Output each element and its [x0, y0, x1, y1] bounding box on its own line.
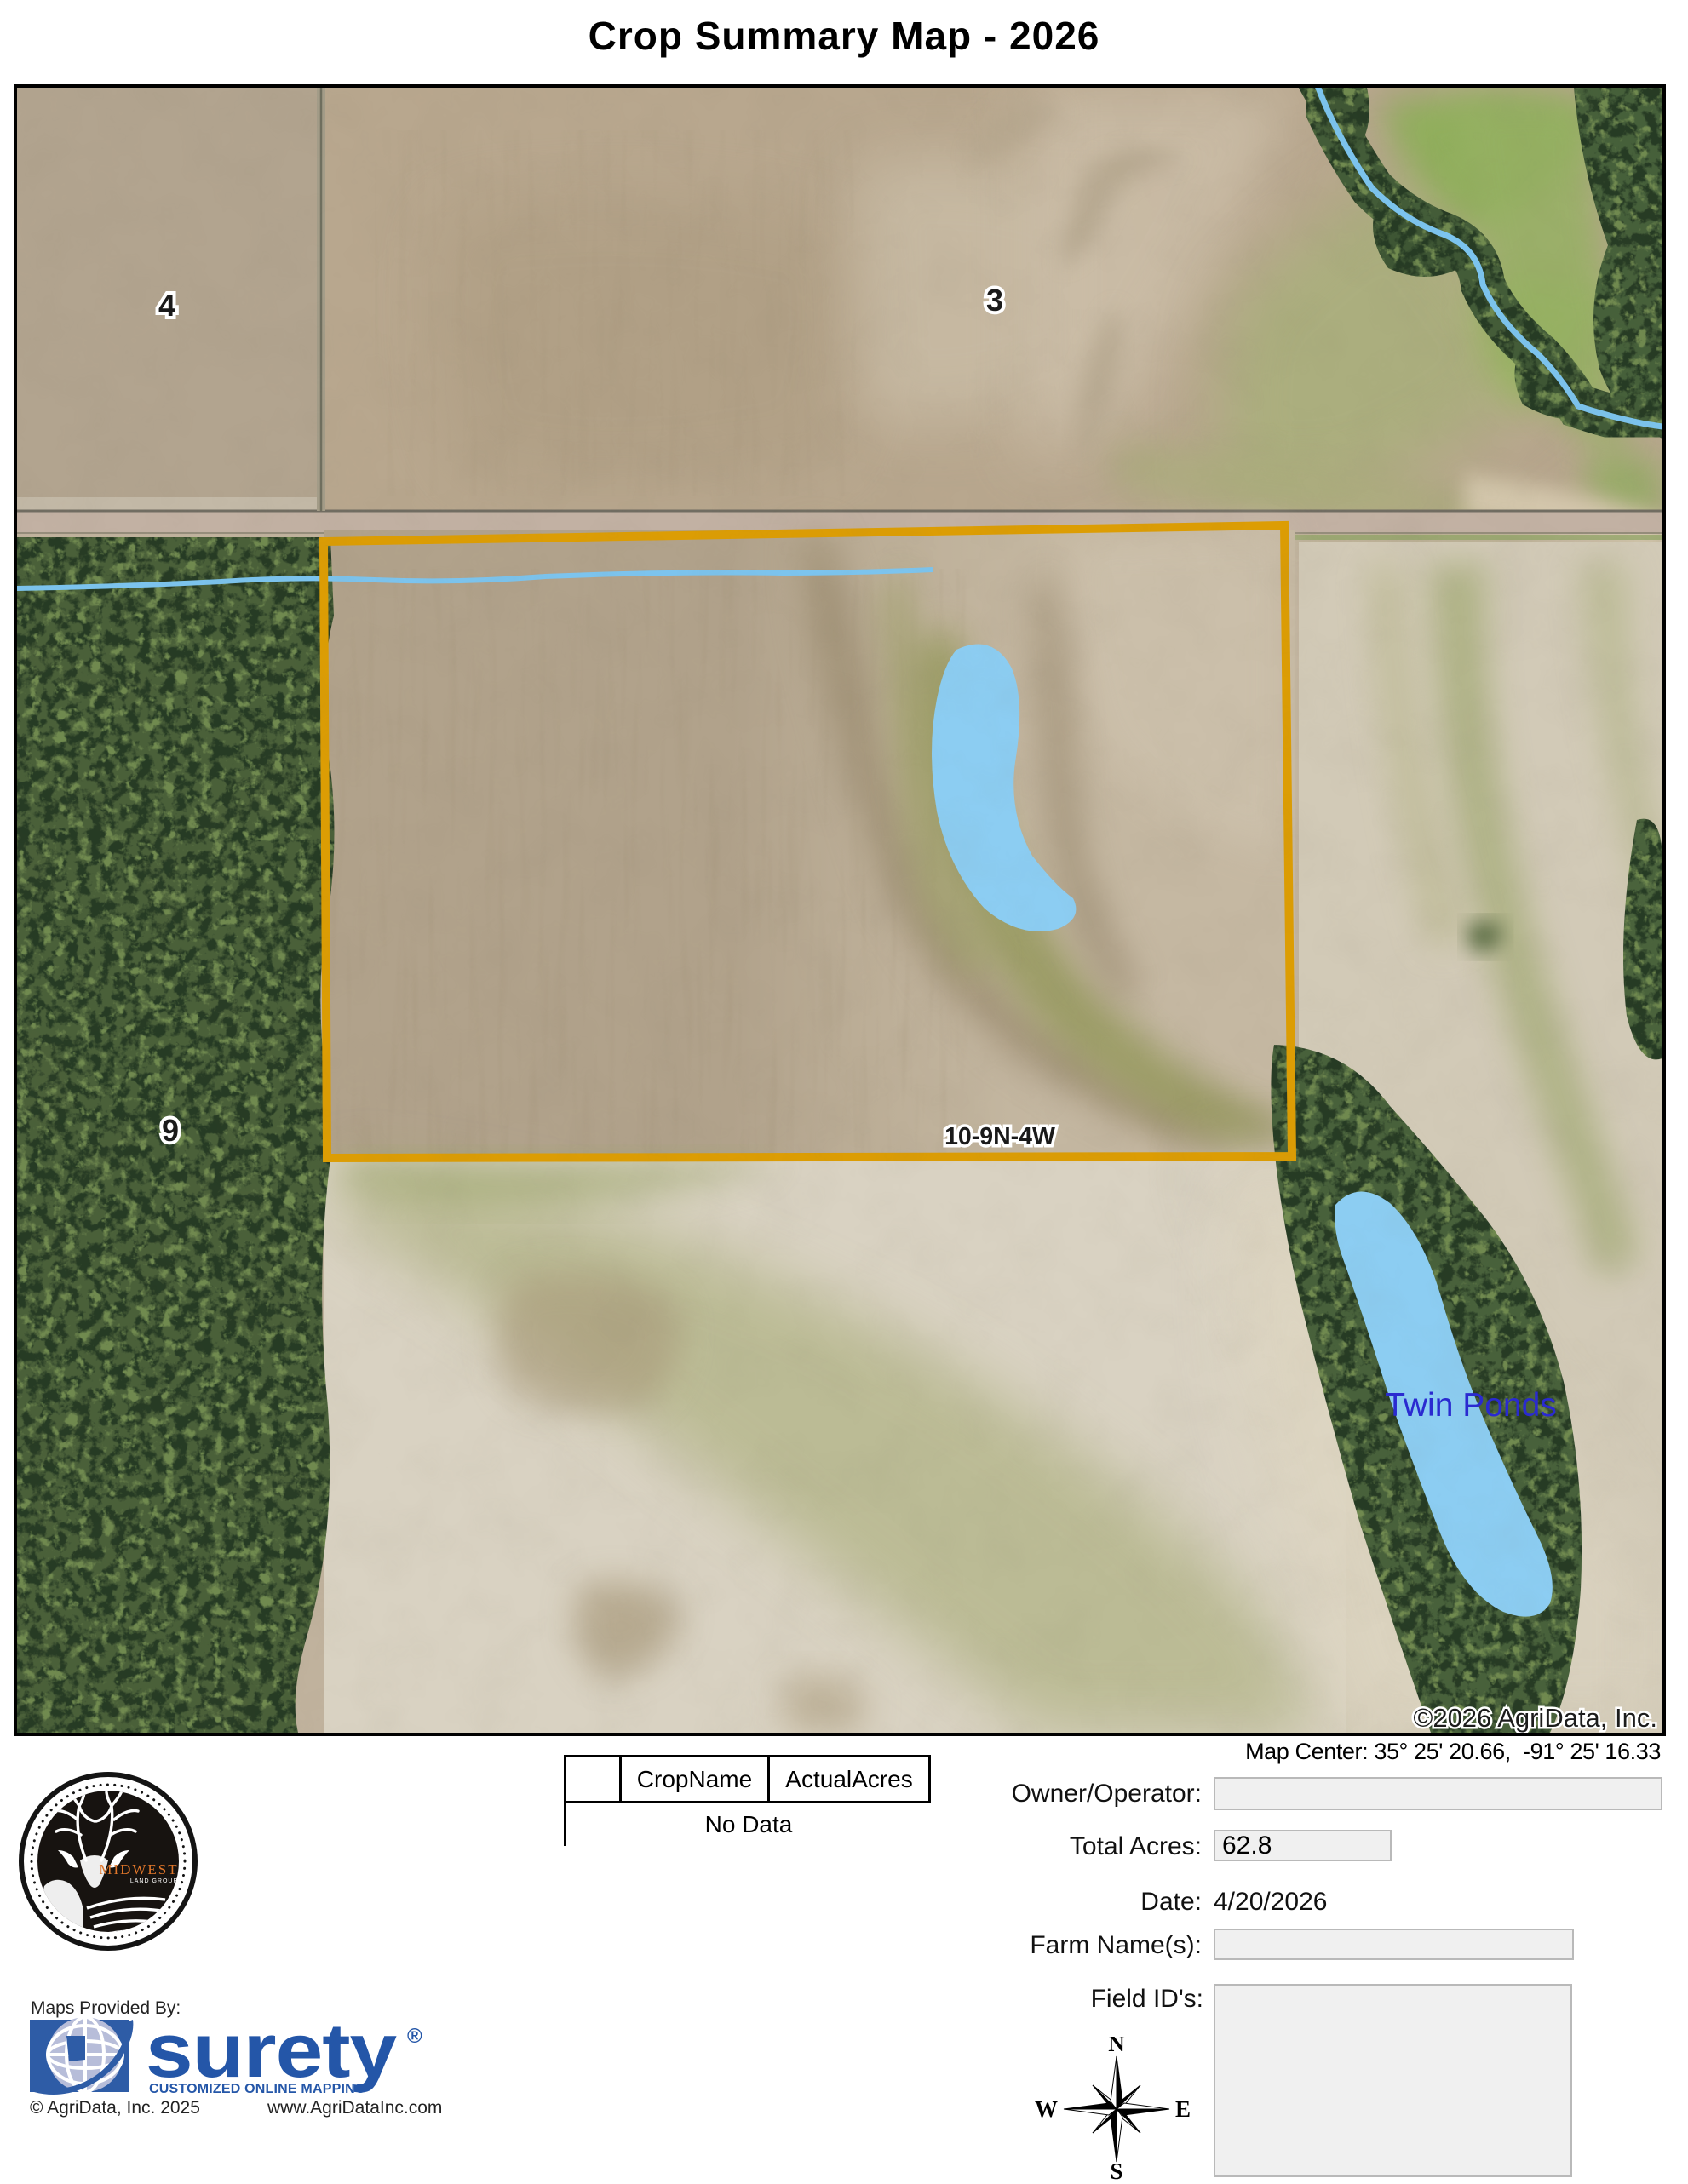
svg-text:Twin Ponds: Twin Ponds [1385, 1387, 1557, 1424]
svg-text:3: 3 [986, 283, 1003, 318]
svg-text:©2026 AgriData, Inc.: ©2026 AgriData, Inc. [1413, 1703, 1657, 1733]
svg-text:®: ® [407, 2025, 422, 2048]
svg-text:LAND GROUP: LAND GROUP [130, 1878, 178, 1884]
svg-text:10-9N-4W: 10-9N-4W [944, 1123, 1055, 1150]
svg-text:E: E [1175, 2096, 1191, 2122]
svg-text:MIDWEST: MIDWEST [99, 1861, 178, 1877]
svg-text:9: 9 [162, 1113, 179, 1148]
svg-text:S: S [1110, 2158, 1122, 2180]
svg-text:W: W [1035, 2096, 1058, 2122]
svg-text:CUSTOMIZED ONLINE MAPPING: CUSTOMIZED ONLINE MAPPING [149, 2082, 366, 2096]
svg-text:4: 4 [158, 288, 175, 323]
svg-text:N: N [1108, 2037, 1125, 2056]
